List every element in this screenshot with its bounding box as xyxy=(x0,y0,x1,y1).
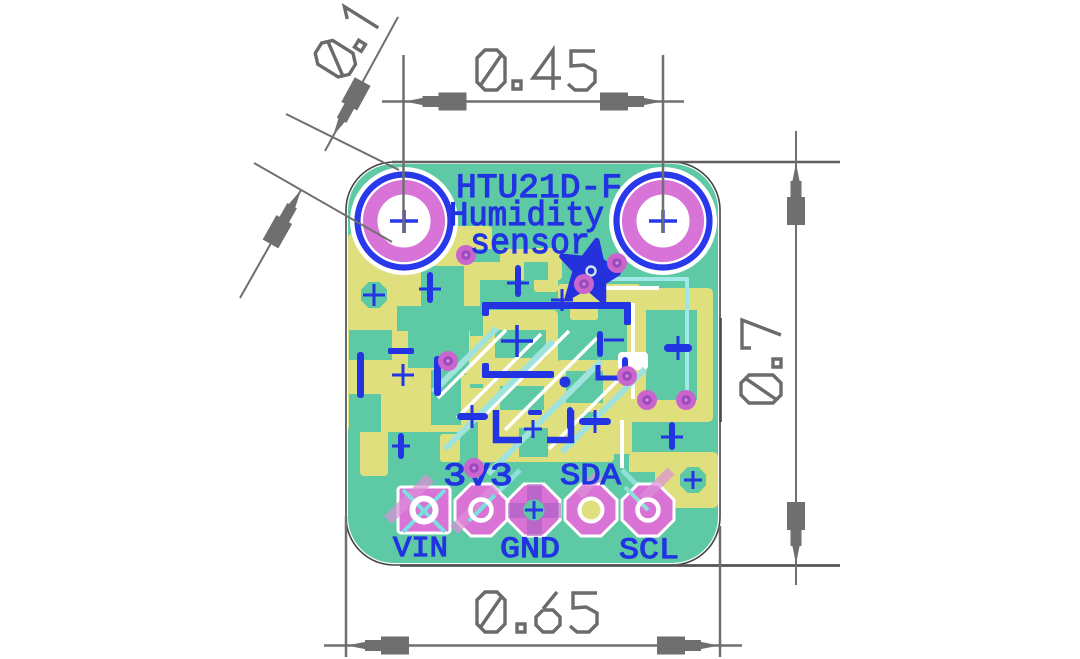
svg-text:SCL: SCL xyxy=(619,534,679,568)
svg-text:GND: GND xyxy=(500,533,560,567)
svg-text:VIN: VIN xyxy=(393,532,448,565)
svg-text:SDA: SDA xyxy=(560,459,621,494)
svg-text:sensor: sensor xyxy=(470,223,590,264)
